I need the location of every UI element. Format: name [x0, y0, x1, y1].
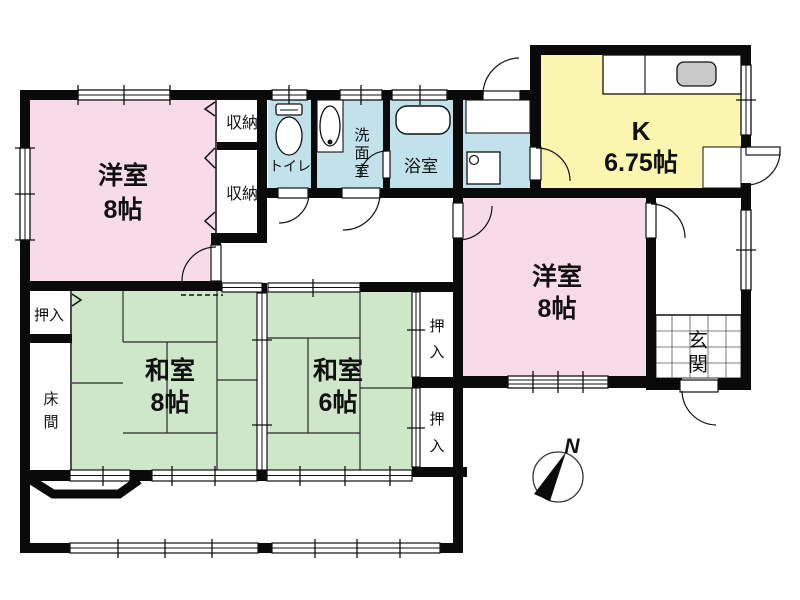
sink-icon: [317, 100, 343, 152]
label-storage-bottom: 収納: [226, 185, 258, 203]
label-closet-rt-1: 押: [429, 318, 444, 335]
label-closet-rb-2: 入: [429, 438, 444, 455]
label-washroom-2: 面: [354, 145, 369, 162]
label-washroom-1: 洗: [354, 127, 369, 144]
label-closet-rb-1: 押: [429, 411, 444, 428]
utility-counter: [466, 100, 530, 133]
label-japanese-8-size: 8帖: [151, 389, 190, 417]
label-kitchen-size: 6.75帖: [604, 149, 678, 177]
label-western-left: 洋室: [98, 161, 148, 190]
label-washroom-3: 室: [354, 163, 369, 180]
compass-north-label: N: [564, 435, 580, 458]
label-western-left-size: 8帖: [104, 196, 143, 224]
label-entrance-2: 関: [688, 354, 708, 376]
room-western-left: [30, 100, 216, 281]
label-alcove-1: 床: [43, 391, 58, 408]
label-closet-rt-2: 入: [429, 344, 444, 361]
toilet-icon: [276, 104, 302, 155]
floor-plan-canvas: 洋室 8帖 収納 収納 トイレ 洗 面 室 浴室 K 6.75帖 洋室 8帖 玄…: [0, 0, 800, 600]
label-japanese-6: 和室: [313, 356, 363, 385]
label-toilet: トイレ: [269, 158, 311, 174]
sliding-door-corridor-j8: [222, 283, 262, 292]
label-japanese-8: 和室: [145, 356, 195, 385]
label-kitchen: K: [632, 116, 651, 146]
label-storage-top: 収納: [226, 114, 258, 132]
kitchen-doorway-landing: [703, 147, 741, 188]
bathtub-icon: [396, 106, 450, 134]
washer-pan-icon: [467, 152, 500, 184]
floor-plan-page: 洋室 8帖 収納 収納 トイレ 洗 面 室 浴室 K 6.75帖 洋室 8帖 玄…: [0, 0, 800, 600]
label-entrance-1: 玄: [688, 329, 708, 352]
stove-icon: [677, 62, 716, 86]
label-bathroom: 浴室: [404, 157, 438, 176]
label-japanese-6-size: 6帖: [319, 389, 358, 417]
label-western-right: 洋室: [532, 262, 582, 291]
label-western-right-size: 8帖: [538, 295, 577, 323]
kitchen-counter: [603, 55, 741, 94]
label-alcove-2: 間: [43, 414, 58, 431]
label-closet-left: 押入: [34, 307, 64, 324]
